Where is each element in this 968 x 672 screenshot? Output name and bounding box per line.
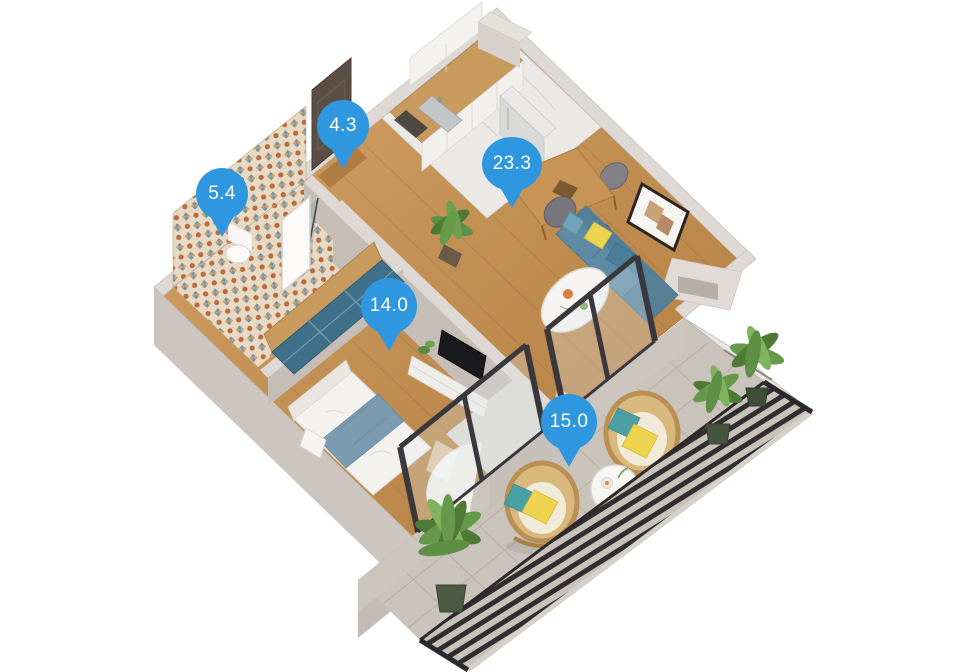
area-pin-bedroom[interactable]: 14.0 [361,278,417,334]
pin-label: 4.3 [329,115,357,137]
area-pin-hallway[interactable]: 4.3 [317,100,369,152]
area-pin-balcony[interactable]: 15.0 [541,394,597,450]
pin-label: 14.0 [370,295,409,317]
pin-label: 15.0 [550,411,589,433]
area-pin-bathroom[interactable]: 5.4 [196,168,248,220]
apartment-3d-floor-plan: 4.3 5.4 23.3 14.0 15.0 [0,0,968,672]
area-pin-living-kitchen[interactable]: 23.3 [482,137,542,191]
floor-plan-render [0,0,968,672]
pin-label: 23.3 [493,153,532,175]
pin-label: 5.4 [208,183,236,205]
